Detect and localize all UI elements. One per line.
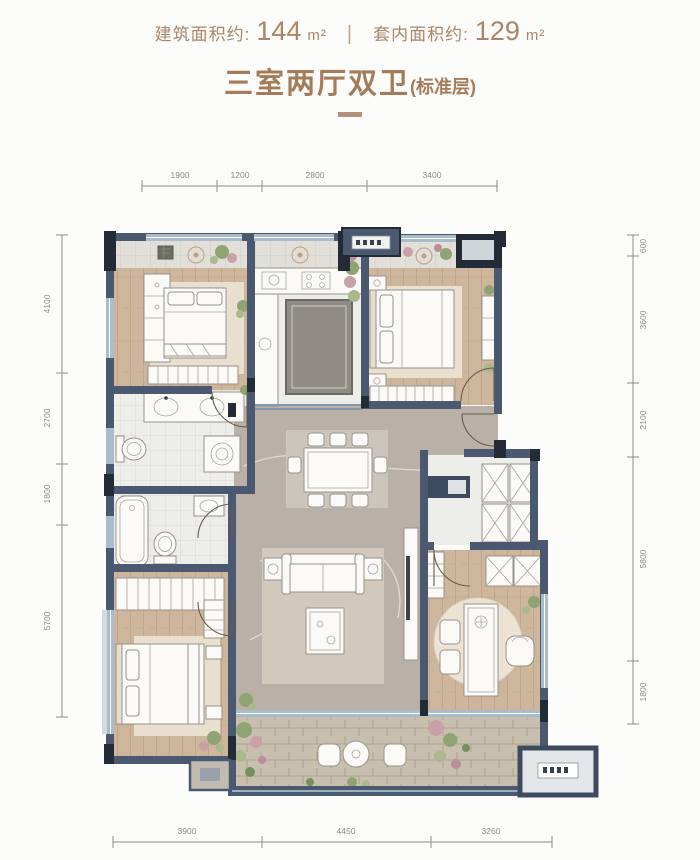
dim-bottom-2: 4450	[337, 826, 356, 836]
balcony-bottom	[318, 741, 406, 767]
coffee-table	[306, 608, 344, 654]
study-chair	[440, 620, 460, 644]
dim-right-3: 2100	[638, 410, 648, 429]
study-desk	[464, 604, 498, 696]
balcony-stool	[384, 744, 406, 766]
bedroom1-bed	[164, 288, 226, 358]
dim-top-2: 1200	[231, 170, 250, 180]
balcony-table	[343, 741, 369, 767]
kitchen	[252, 268, 364, 410]
bay-window-sill	[102, 610, 107, 734]
ac-platform-top	[342, 228, 400, 256]
dim-top-1: 1900	[171, 170, 190, 180]
dimension-bottom: 3900 4450 3260	[113, 826, 552, 848]
dim-right-5: 1800	[638, 682, 648, 701]
dim-left-3: 1800	[42, 484, 52, 503]
bath2-toilet	[154, 532, 176, 564]
dining-chair	[374, 457, 387, 473]
bedroom1	[144, 274, 244, 384]
dim-right-1: 600	[638, 239, 648, 253]
dimension-top: 1900 1200 2800 3400	[142, 170, 497, 192]
dining-chair	[288, 457, 301, 473]
bedroom1-dresser	[148, 366, 238, 384]
master-nightstand-top	[368, 276, 386, 290]
dim-left-1: 4100	[42, 294, 52, 313]
master-bed	[370, 290, 454, 368]
kitchen-sliding-door	[254, 404, 362, 406]
bedroom2	[116, 578, 224, 736]
dining-chair	[352, 433, 368, 446]
dim-top-3: 2800	[306, 170, 325, 180]
bedroom2-nightstand-bottom	[206, 706, 222, 719]
dim-top-4: 3400	[423, 170, 442, 180]
bath1-washer	[204, 436, 240, 472]
dining-chair	[308, 433, 324, 446]
bedroom2-bed	[116, 644, 204, 724]
kitchen-island	[286, 300, 352, 394]
plant	[484, 285, 494, 295]
tv-cabinet	[404, 528, 418, 660]
dim-left-2: 2700	[42, 408, 52, 427]
floor-plan: 1900 1200 2800 3400 4100 2700 1800 5700 …	[0, 0, 700, 860]
tv	[406, 556, 410, 620]
dim-right-2: 3600	[638, 310, 648, 329]
dimension-right: 600 3600 2100 5800 1800	[627, 235, 648, 724]
dining-chair	[330, 433, 346, 446]
entry	[424, 476, 470, 498]
balcony-stool	[318, 744, 340, 766]
sofa-side-table	[264, 558, 282, 580]
bath2-window	[106, 516, 114, 548]
bedroom2-nightstand-top	[206, 646, 222, 659]
bath2-tub	[116, 496, 148, 566]
dim-bottom-3: 3260	[482, 826, 501, 836]
dining-chair	[352, 494, 368, 507]
entry-bench-cushion	[448, 480, 466, 494]
study-chair	[440, 650, 460, 674]
dining-table	[304, 448, 372, 492]
planter-box	[158, 246, 173, 259]
sofa-side-table	[364, 558, 382, 580]
dim-left-4: 5700	[42, 611, 52, 630]
master-dresser	[482, 296, 495, 360]
bath1-window	[106, 428, 114, 464]
sofa	[282, 554, 364, 594]
dining-area	[286, 430, 388, 508]
dimension-left: 4100 2700 1800 5700	[42, 235, 68, 717]
dining-chair	[308, 494, 324, 507]
study-armchair	[506, 636, 534, 666]
ac-platform-bottom	[520, 748, 596, 795]
bath1-toilet	[116, 436, 146, 462]
dining-chair	[330, 494, 346, 507]
dim-bottom-1: 3900	[178, 826, 197, 836]
bedroom2-cabinet	[204, 600, 224, 638]
entry-step	[190, 760, 230, 790]
dim-right-4: 5800	[638, 549, 648, 568]
